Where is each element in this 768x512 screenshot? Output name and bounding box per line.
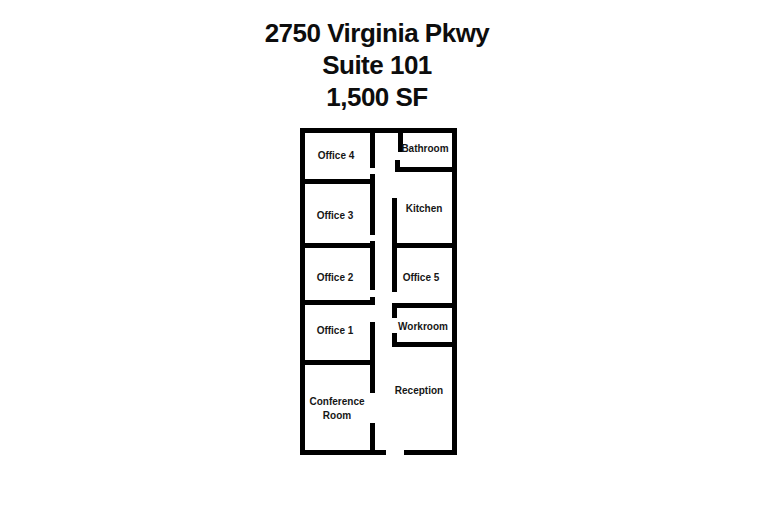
floorplan-canvas: Office 4BathroomOffice 3KitchenOffice 2O…: [0, 0, 768, 512]
room-label-office-1: Office 1: [317, 324, 354, 338]
outer-top-wall: [300, 128, 457, 133]
workroom-left-upper-wall: [392, 303, 397, 318]
room-label-office-3: Office 3: [317, 209, 354, 223]
floorplan-page: 2750 Virginia Pkwy Suite 101 1,500 SF Of…: [0, 0, 768, 512]
workroom-bottom-wall: [392, 342, 457, 347]
conference-top-wall: [300, 360, 375, 365]
office4-right-wall: [370, 128, 375, 168]
office1-right-wall: [370, 322, 375, 393]
room-label-reception: Reception: [395, 384, 443, 398]
room-label-office-5: Office 5: [403, 271, 440, 285]
outer-right-wall: [452, 128, 457, 455]
room-label-workroom: Workroom: [398, 320, 448, 334]
office3-top-wall: [300, 179, 375, 184]
room-label-kitchen: Kitchen: [406, 202, 443, 216]
room-label-conference-room: Conference Room: [302, 395, 372, 423]
kitchen-left-wall: [392, 198, 397, 248]
room-label-office-2: Office 2: [317, 271, 354, 285]
workroom-top-wall: [392, 303, 457, 308]
outer-bottom-right-wall: [404, 450, 457, 455]
kitchen-bottom-wall: [392, 243, 457, 248]
office5-left-wall: [392, 248, 397, 292]
room-label-office-4: Office 4: [318, 149, 355, 163]
office3-right-wall: [370, 184, 375, 235]
reception-left-stub-wall: [370, 423, 375, 455]
room-label-bathroom: Bathroom: [401, 142, 448, 156]
office1-top-wall: [300, 300, 375, 305]
office2-right-wall: [370, 248, 375, 290]
office2-top-wall: [300, 243, 375, 248]
bathroom-bottom-wall: [395, 167, 457, 172]
